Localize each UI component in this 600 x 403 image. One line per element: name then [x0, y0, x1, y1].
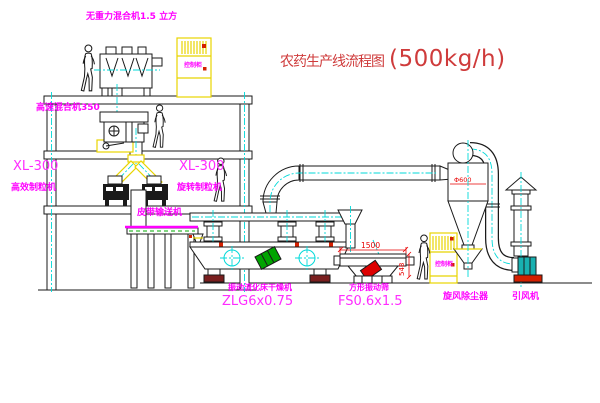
label-sieve-name: 方形振动筛 [349, 284, 389, 292]
cyclone-diameter-marking: Φ600 [454, 176, 472, 184]
label-gravity-mixer: 无重力混合机1.5 立方 [86, 13, 177, 22]
control-cabinet-2 [430, 233, 457, 283]
sieve-length-dimension: 1500 [361, 241, 380, 250]
granulator-left [103, 176, 129, 206]
label-dryer-model: ZLG6x0.75 [222, 295, 293, 308]
title-capacity: (500kg/h) [389, 46, 506, 72]
label-granulator-left-name: 高效制粒机 [11, 184, 56, 193]
label-cyclone: 旋风除尘器 [443, 293, 488, 302]
title-text: 农药生产线流程图 [280, 51, 384, 71]
label-granulator-right-model: XL-300 [179, 160, 224, 173]
label-dryer-name: 振动流化床干燥机 [228, 284, 292, 292]
belt-conveyor [125, 227, 203, 288]
person-figure [81, 45, 94, 91]
induced-draft-fan [512, 257, 542, 282]
label-sieve-model: FS0.6x1.5 [338, 295, 403, 308]
person-figure [153, 105, 165, 147]
label-cabinet-1: 控制柜 [184, 63, 202, 69]
label-cabinet-2: 控制柜 [435, 262, 453, 268]
label-high-speed-mixer: 高速混合机350 [36, 104, 100, 113]
gravity-mixer [94, 47, 162, 116]
label-granulator-left-model: XL-300 [13, 160, 58, 173]
fluid-bed-dryer [190, 210, 348, 282]
person-figure [417, 235, 430, 279]
diagram-title: 农药生产线流程图 (500kg/h) [280, 46, 506, 72]
label-fan: 引风机 [512, 293, 539, 302]
label-granulator-right-name: 旋转制粒机 [177, 184, 222, 193]
label-belt-conveyor: 皮带输送机 [137, 209, 182, 218]
process-flow-diagram: 1500 548 Φ600 农药生产线流程图 [0, 0, 600, 403]
sieve-height-dimension: 548 [398, 263, 406, 276]
main-exhaust-duct [260, 164, 452, 213]
